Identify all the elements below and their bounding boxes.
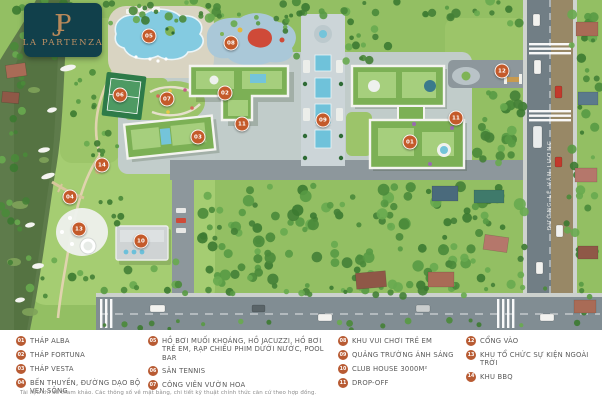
legend-item-label: QUẢNG TRƯỜNG ÁNH SÁNG [352,350,454,359]
map-marker-number: 03 [194,134,202,140]
legend-item: 11 DROP-OFF [338,378,460,388]
map-marker: 12 [495,64,510,79]
map-marker: 11 [449,111,464,126]
legend-item-label: THÁP ALBA [30,336,70,345]
map-marker-number: 14 [98,162,106,168]
map: JP LA PARTENZA ĐƯỜNG LÊ VĂN LƯƠNG 05 08 … [0,0,602,330]
legend-item-number: 08 [338,336,348,346]
masterplan-page: JP LA PARTENZA ĐƯỜNG LÊ VĂN LƯƠNG 05 08 … [0,0,602,400]
legend-item-label: CLUB HOUSE 3000M² [352,364,427,373]
map-marker-number: 04 [66,194,74,200]
legend-item-label: SÂN TENNIS [162,366,205,375]
legend-item-number: 01 [16,336,26,346]
map-marker-number: 11 [452,115,460,121]
map-marker: 06 [113,88,128,103]
street-label: ĐƯỜNG LÊ VĂN LƯƠNG [547,140,553,230]
map-marker: 04 [63,190,78,205]
legend-item: 13 KHU TỔ CHỨC SỰ KIỆN NGOÀI TRỜI [466,350,598,368]
legend-column: 05 HỒ BƠI MUỐI KHOÁNG, HỒ JACUZZI, HỒ BƠ… [148,336,332,394]
map-marker: 08 [224,36,239,51]
legend-item: 07 CÔNG VIÊN VƯỜN HOA [148,380,332,390]
legend-item: 02 THÁP FORTUNA [16,350,142,360]
map-marker: 09 [316,113,331,128]
legend-item-number: 09 [338,350,348,360]
legend-item-label: KHU TỔ CHỨC SỰ KIỆN NGOÀI TRỜI [480,350,598,368]
light-square-axis [301,14,345,166]
legend-item: 14 KHU BBQ [466,372,598,382]
map-marker-number: 10 [137,238,145,244]
legend-item-label: DROP-OFF [352,378,389,387]
legend-item-number: 04 [16,378,26,388]
legend: 01 THÁP ALBA 02 THÁP FORTUNA 03 THÁP VES… [0,330,602,400]
map-marker-number: 11 [238,121,246,127]
legend-item-number: 10 [338,364,348,374]
legend-item-label: KHU BBQ [480,372,513,381]
legend-item: 09 QUẢNG TRƯỜNG ÁNH SÁNG [338,350,460,360]
map-marker: 02 [218,86,233,101]
legend-item: 05 HỒ BƠI MUỐI KHOÁNG, HỒ JACUZZI, HỒ BƠ… [148,336,332,362]
legend-item-number: 11 [338,378,348,388]
map-marker: 03 [191,130,206,145]
legend-item: 12 CỔNG VÀO [466,336,598,346]
legend-column: 12 CỔNG VÀO 13 KHU TỔ CHỨC SỰ KIỆN NGOÀI… [466,336,598,386]
map-marker: 01 [403,135,418,150]
legend-item-number: 13 [466,350,476,360]
disclaimer: Tài liệu chỉ để tham khảo. Các thông số … [20,390,316,396]
map-marker-number: 07 [163,96,171,102]
logo-card: JP LA PARTENZA [24,3,102,57]
map-marker: 07 [160,92,175,107]
legend-item: 10 CLUB HOUSE 3000M² [338,364,460,374]
legend-item-number: 02 [16,350,26,360]
legend-item: 08 KHU VUI CHƠI TRẺ EM [338,336,460,346]
map-marker: 13 [72,222,87,237]
map-marker-number: 01 [406,139,414,145]
brand-monogram: JP [54,13,71,36]
legend-item-label: HỒ BƠI MUỐI KHOÁNG, HỒ JACUZZI, HỒ BƠI T… [162,336,332,362]
legend-item-number: 12 [466,336,476,346]
legend-item-number: 06 [148,366,158,376]
legend-item-label: THÁP FORTUNA [30,350,85,359]
legend-item: 06 SÂN TENNIS [148,366,332,376]
legend-column: 08 KHU VUI CHƠI TRẺ EM 09 QUẢNG TRƯỜNG Á… [338,336,460,392]
legend-item-number: 07 [148,380,158,390]
map-marker: 10 [134,234,149,249]
map-marker-number: 02 [221,90,229,96]
map-marker-number: 12 [498,68,506,74]
map-marker: 11 [235,117,250,132]
brand-name: LA PARTENZA [23,38,104,48]
legend-item: 03 THÁP VESTA [16,364,142,374]
map-marker: 05 [142,29,157,44]
legend-item-number: 14 [466,372,476,382]
map-marker-number: 13 [75,226,83,232]
map-marker-number: 06 [116,92,124,98]
legend-item-label: KHU VUI CHƠI TRẺ EM [352,336,432,345]
legend-item: 01 THÁP ALBA [16,336,142,346]
map-marker: 14 [95,158,110,173]
map-marker-number: 09 [319,117,327,123]
legend-item-number: 03 [16,364,26,374]
legend-item-number: 05 [148,336,158,346]
map-marker-number: 08 [227,40,235,46]
legend-item-label: CÔNG VIÊN VƯỜN HOA [162,380,245,389]
legend-item-label: CỔNG VÀO [480,336,518,345]
plaza-lawn-3 [346,112,372,156]
legend-item-label: THÁP VESTA [30,364,74,373]
map-marker-number: 05 [145,33,153,39]
